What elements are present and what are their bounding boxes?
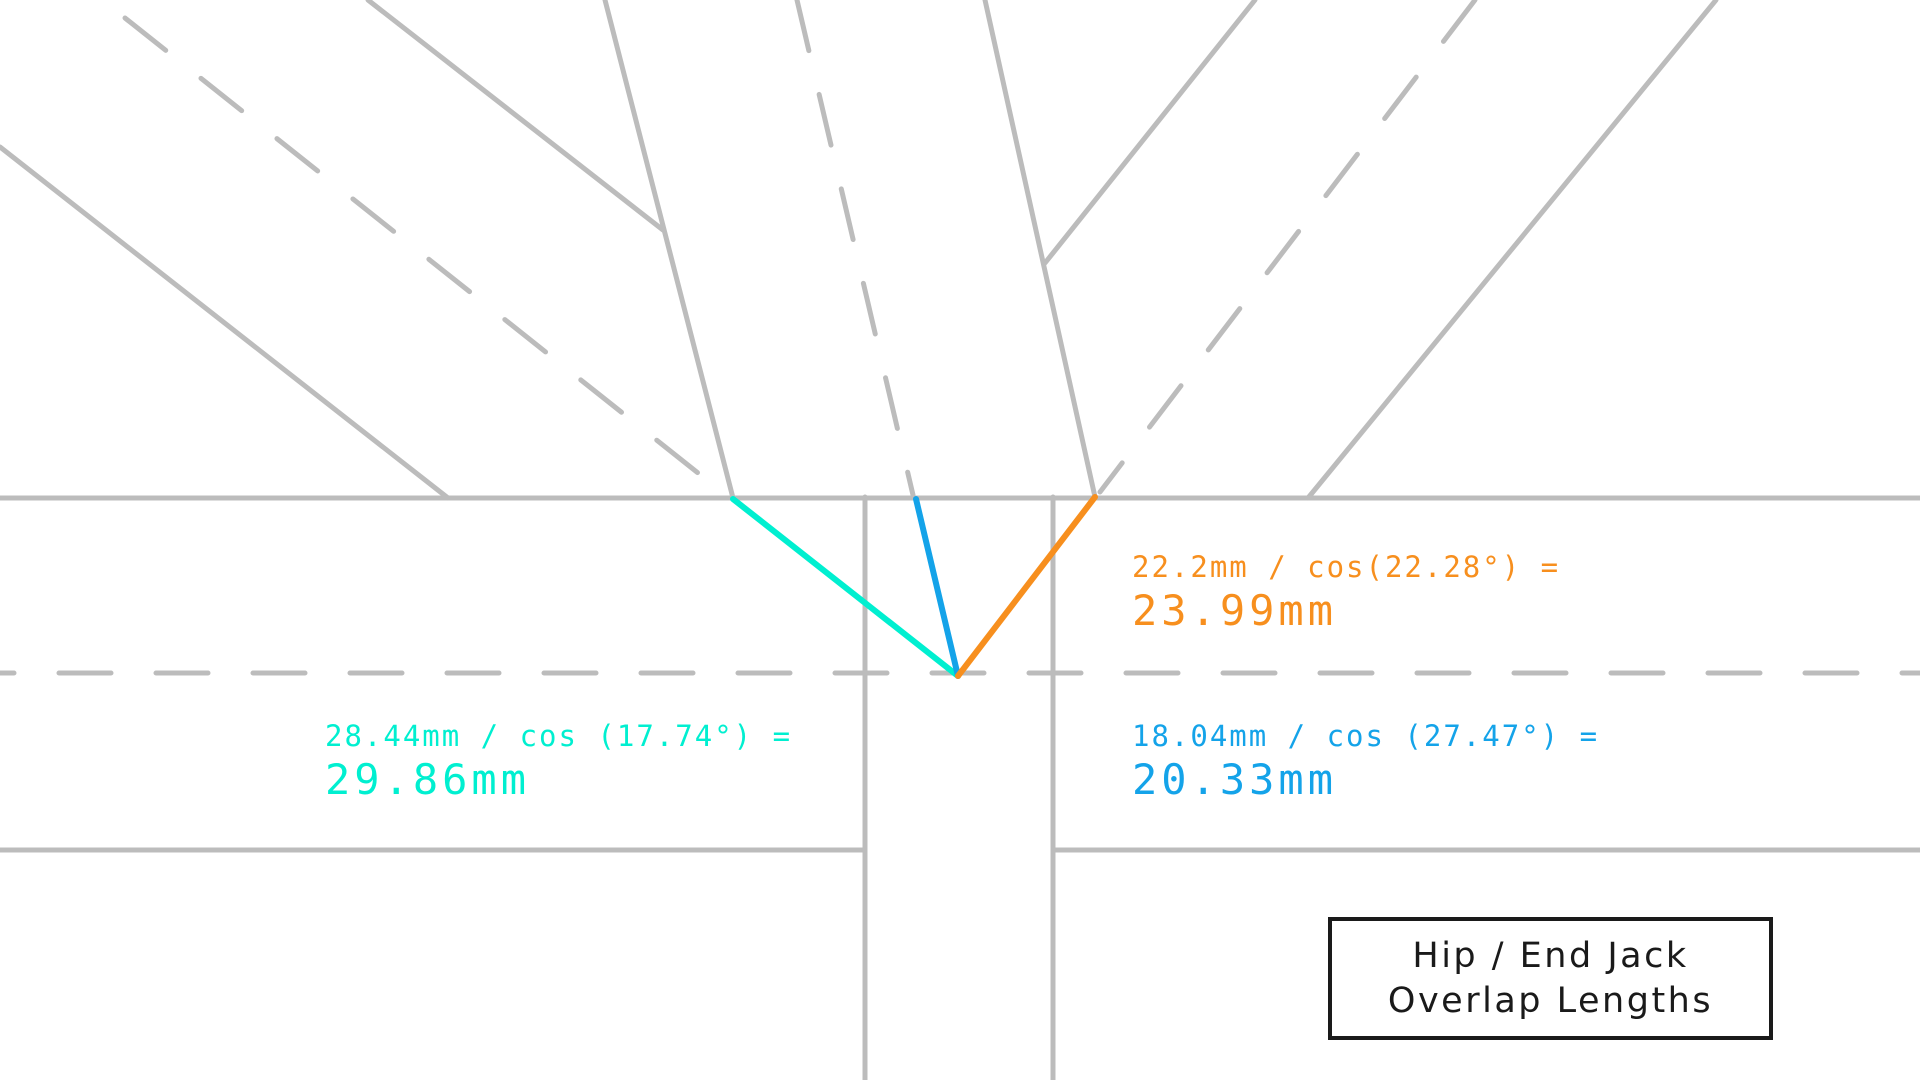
orange-overlap-formula: 22.2mm / cos(22.28°) = [1132, 551, 1560, 584]
right-jack-rafter-left-edge-line [1045, 0, 1255, 263]
title-box: Hip / End Jack Overlap Lengths [1328, 917, 1773, 1040]
left-jack-rafter-top-edge-line [368, 0, 663, 230]
center-rafter-centerline-dashed [797, 0, 913, 495]
title-line-1: Hip / End Jack [1412, 934, 1688, 979]
orange-overlap-result: 23.99mm [1132, 588, 1560, 634]
center-rafter-right-edge-line [985, 0, 1095, 497]
left-jack-rafter-centerline-dashed [125, 18, 727, 496]
title-line-2: Overlap Lengths [1388, 979, 1713, 1024]
cyan-overlap-result: 29.86mm [325, 757, 792, 803]
cyan-overlap-formula: 28.44mm / cos (17.74°) = [325, 720, 792, 753]
left-jack-rafter-bottom-edge-line [0, 147, 448, 498]
orange-overlap-line [958, 497, 1095, 676]
diagram-stage: 22.2mm / cos(22.28°) = 23.99mm 28.44mm /… [0, 0, 1920, 1080]
blue-overlap-formula: 18.04mm / cos (27.47°) = [1132, 720, 1599, 753]
blue-overlap-result: 20.33mm [1132, 757, 1599, 803]
cyan-overlap-label: 28.44mm / cos (17.74°) = 29.86mm [325, 720, 792, 803]
right-jack-rafter-centerline-dashed [1100, 0, 1475, 492]
center-rafter-left-edge-line [605, 0, 733, 498]
blue-overlap-label: 18.04mm / cos (27.47°) = 20.33mm [1132, 720, 1599, 803]
orange-overlap-label: 22.2mm / cos(22.28°) = 23.99mm [1132, 551, 1560, 634]
right-jack-rafter-right-edge-line [1308, 0, 1716, 498]
